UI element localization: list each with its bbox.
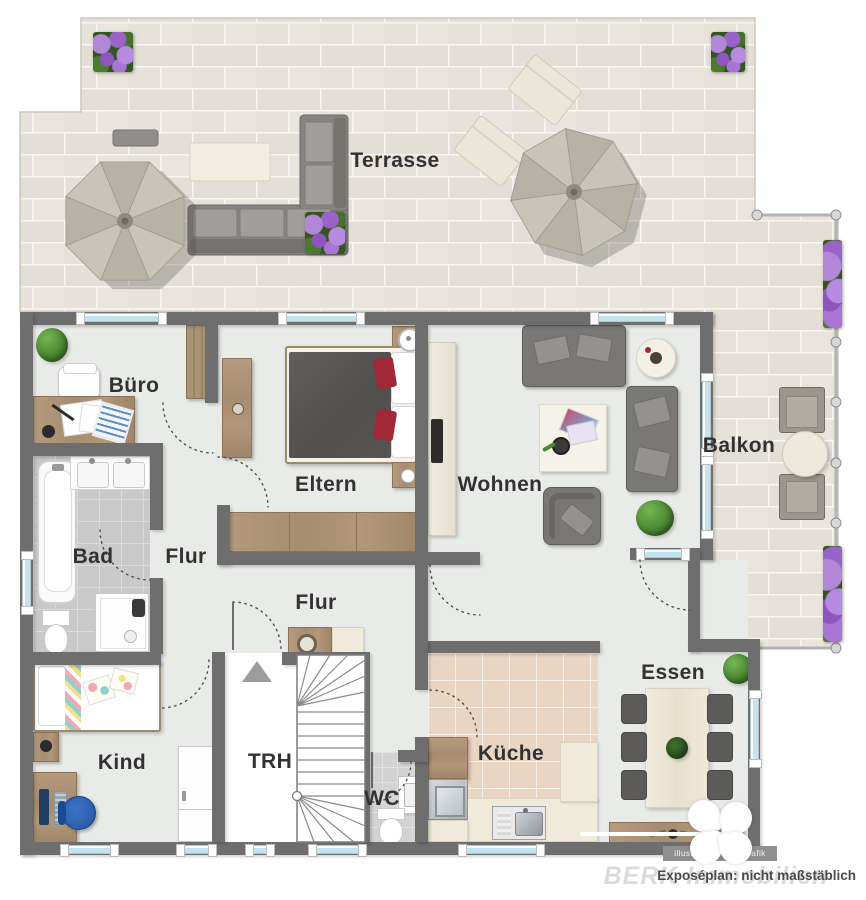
living-sofa (522, 325, 626, 387)
stove (428, 779, 468, 820)
monitor (39, 789, 49, 825)
wall-parents-bottom (217, 552, 427, 565)
room-label-flur-upper: Flur (165, 545, 206, 569)
window (702, 458, 711, 537)
wall-kids-stair (212, 652, 225, 842)
room-label-terrasse: Terrasse (350, 149, 439, 173)
window (22, 553, 31, 613)
pillow (38, 666, 66, 726)
tv (431, 419, 443, 463)
kitchen-sink (492, 806, 546, 840)
window (62, 845, 117, 854)
room-label-trh: TRH (248, 750, 292, 774)
window (247, 845, 273, 854)
double-bed (285, 346, 417, 464)
kids-bed (33, 660, 161, 732)
wall-stair-top (282, 652, 365, 665)
balcony-chair (779, 474, 825, 520)
terrace-coffee-table (190, 143, 270, 181)
balcony-door (638, 549, 688, 558)
wall-bottom (20, 842, 760, 855)
sink (113, 462, 145, 488)
drain (124, 630, 137, 643)
wall-office-bottom (33, 443, 163, 456)
kids-nightstand (33, 732, 59, 762)
wall-stair-right (358, 652, 370, 842)
wall-office-right (205, 325, 218, 403)
hall-cabinet (332, 627, 364, 653)
armchair (543, 487, 601, 545)
wall-dining-left (688, 548, 700, 651)
window (310, 845, 365, 854)
dining-chair (707, 770, 733, 800)
coffee-table (539, 404, 607, 472)
scale-disclaimer: Exposéplan: nicht maßstäblich (620, 868, 856, 883)
room-label-kind: Kind (98, 751, 146, 775)
room-label-flur-lower: Flur (295, 591, 336, 615)
bedroom-sideboard (222, 512, 424, 552)
living-room-plant (636, 500, 674, 536)
tub-faucet (52, 464, 64, 471)
wall-dining-top-right (688, 639, 755, 652)
flower-planter (93, 32, 133, 72)
dining-chair (707, 732, 733, 762)
living-sofa (626, 386, 678, 492)
sink (77, 462, 109, 488)
room-label-eltern: Eltern (295, 473, 357, 497)
kitchen-cabinet (428, 737, 468, 779)
office-chair (58, 366, 100, 400)
window (280, 313, 363, 322)
shower-fixture (132, 599, 145, 617)
wall-bath-right-upper (150, 456, 163, 530)
toilet (44, 624, 68, 654)
wall-kids-top (33, 652, 161, 665)
kitchen-cabinet (428, 820, 468, 842)
side-table (636, 338, 676, 378)
balcony-chair (779, 387, 825, 433)
dining-chair (621, 694, 647, 724)
room-label-wohnen: Wohnen (458, 473, 543, 497)
window (78, 313, 165, 322)
stairwell-floor (225, 653, 358, 842)
wall-parents-living (415, 325, 428, 565)
shower (94, 592, 150, 653)
wall-kitchen-left-upper (415, 565, 428, 690)
window (178, 845, 215, 854)
dining-chair (621, 732, 647, 762)
terrace-bench (113, 130, 158, 146)
kids-desk-chair (62, 796, 96, 830)
clover-logo-icon (688, 800, 752, 864)
window (750, 692, 759, 766)
desk-lamp (42, 425, 55, 438)
table-centerpiece (666, 737, 688, 759)
floor-plan: Terrasse Büro Eltern Wohnen Balkon Bad F… (0, 0, 866, 900)
room-label-kueche: Küche (478, 742, 544, 766)
room-label-buero: Büro (109, 374, 160, 398)
window (460, 845, 543, 854)
flower-planter (305, 212, 345, 254)
wall-hall-living (415, 552, 480, 565)
wall-kitchen-top (420, 641, 600, 653)
tv-wall-unit (428, 342, 456, 536)
dining-chair (621, 770, 647, 800)
hall-cabinet (288, 627, 332, 653)
dining-table (645, 688, 709, 808)
kitchen-counter (560, 742, 598, 802)
bedroom-dresser (222, 358, 252, 458)
balcony-table (782, 431, 828, 477)
railing-flower-box (823, 240, 842, 328)
railing-flower-box (823, 546, 842, 642)
kids-wardrobe (178, 746, 216, 842)
kids-blanket (65, 662, 81, 730)
wall-wc-top (398, 750, 428, 762)
room-label-bad: Bad (73, 545, 114, 569)
dining-chair (707, 694, 733, 724)
flower-planter (711, 32, 745, 72)
office-plant (36, 328, 68, 362)
room-label-wc: WC (364, 787, 400, 811)
window (592, 313, 672, 322)
room-label-essen: Essen (641, 661, 705, 685)
wall-bath-right-lower (150, 578, 163, 654)
office-desk (33, 396, 135, 448)
wc-toilet (379, 818, 403, 844)
vanity-counter (70, 456, 150, 490)
room-label-balkon: Balkon (703, 434, 775, 458)
